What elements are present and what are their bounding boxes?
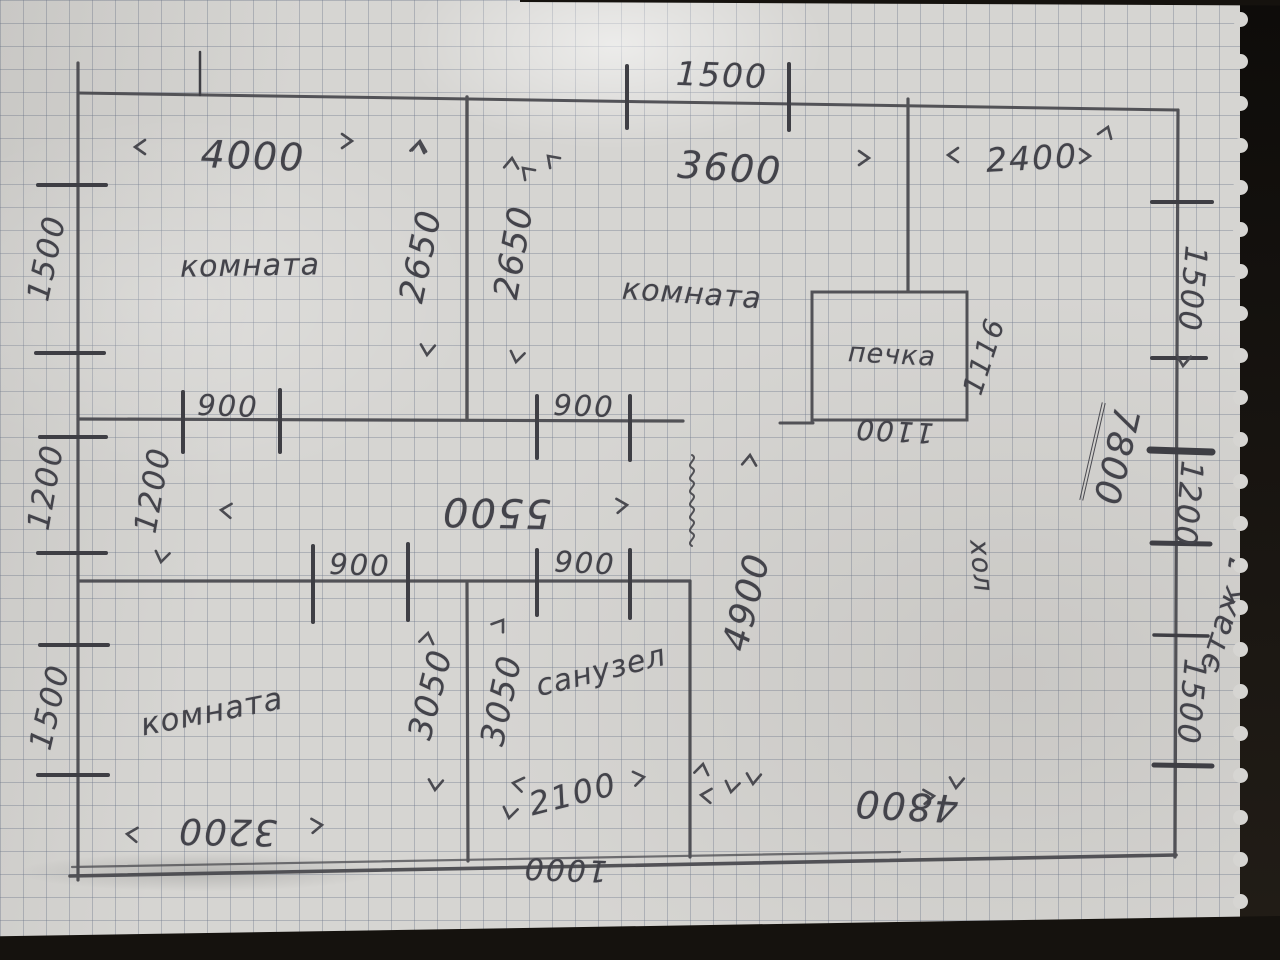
dim-label-stove-width: 1100 <box>854 412 935 449</box>
dim-arrow <box>512 776 524 792</box>
dimension-arrows <box>126 125 1190 842</box>
dim-tick <box>1150 450 1212 452</box>
dim-label-room-tm-width: 3600 <box>676 142 784 193</box>
dim-label-door-room-tl: 900 <box>197 388 260 424</box>
dim-label-hall-width: 4800 <box>853 781 960 830</box>
dim-arrow <box>492 616 509 632</box>
dim-label-door-room-tm: 900 <box>553 388 616 424</box>
dim-label-right-middle: 1200 <box>1166 459 1209 549</box>
dim-label-right-top: 1500 <box>1170 244 1213 334</box>
dim-arrow <box>504 157 519 168</box>
dim-arrow <box>746 773 761 784</box>
photo-of-floor-plan: комната комната комната санузел печка хо… <box>0 0 1280 960</box>
perforation-holes <box>1233 12 1248 27</box>
dim-arrow <box>428 779 443 790</box>
door-squiggle <box>690 455 694 546</box>
dim-arrow <box>419 632 435 644</box>
notebook-paper: комната комната комната санузел печка хо… <box>0 0 1240 942</box>
dim-label-room-bl-width: 3200 <box>177 810 277 853</box>
dim-arrow <box>1080 149 1090 163</box>
notebook-binding-strip <box>1240 0 1280 960</box>
wall-bottom-outer <box>70 855 1176 876</box>
dim-arrow <box>724 781 740 793</box>
stove-label: печка <box>847 337 937 373</box>
dim-arrow <box>518 163 535 180</box>
dim-label-right-bottom: 1500 <box>1169 657 1212 747</box>
dim-arrow <box>633 770 645 786</box>
dim-arrow <box>420 344 435 355</box>
hall-label: хол <box>963 538 998 593</box>
dim-arrow <box>616 498 627 513</box>
dim-arrow <box>509 351 525 363</box>
dim-arrow <box>694 763 710 775</box>
dim-label-door-bathroom: 900 <box>553 544 616 581</box>
dim-label-entry-width: 2400 <box>985 136 1079 180</box>
dim-arrow <box>742 454 757 465</box>
dim-arrow <box>543 151 560 168</box>
wall-bathroom-left <box>467 583 468 861</box>
room-label-top-left: комната <box>180 247 321 284</box>
dim-arrow <box>948 148 958 162</box>
dim-arrow <box>342 134 352 148</box>
dim-label-door-room-bl: 900 <box>329 547 392 583</box>
walls <box>70 63 1178 880</box>
dim-label-bottom-opening: 1000 <box>522 850 608 888</box>
dim-tick <box>1154 765 1212 766</box>
dim-arrow <box>126 827 137 842</box>
dim-arrow <box>311 818 322 833</box>
dim-label-corridor-length: 5500 <box>441 488 552 536</box>
dim-label-top-opening: 1500 <box>675 54 768 96</box>
dim-arrow <box>154 551 170 563</box>
dim-arrow <box>135 140 145 154</box>
dim-label-room-tl-width: 4000 <box>200 132 306 180</box>
dim-arrow <box>502 807 518 819</box>
dim-arrow <box>859 151 869 165</box>
dim-arrow <box>700 788 711 803</box>
dim-arrow <box>1098 125 1115 139</box>
wall-bottom-inner <box>72 852 900 867</box>
dim-arrow <box>220 503 231 518</box>
